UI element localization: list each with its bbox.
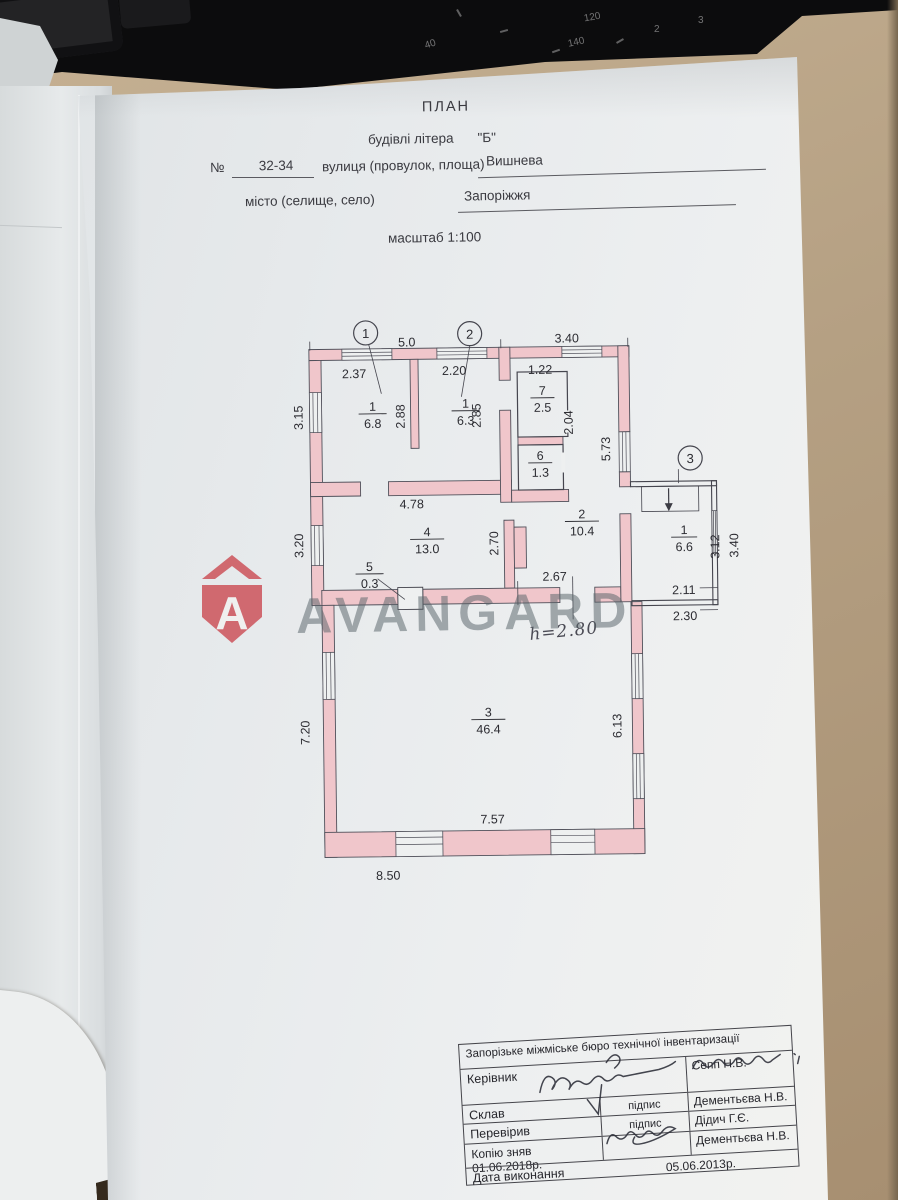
room-number: 4 bbox=[424, 525, 431, 539]
room-number: 7 bbox=[539, 384, 546, 398]
avangard-logo-icon: A bbox=[197, 553, 267, 645]
room-number: 2 bbox=[578, 507, 585, 521]
gauge-tick-icon bbox=[552, 49, 560, 54]
room-label-13.0: 4 13.0 bbox=[410, 525, 444, 556]
street-label: вулиця (провулок, площа) bbox=[322, 157, 485, 175]
room-label-2.5: 7 2.5 bbox=[530, 384, 554, 415]
dim: 8.50 bbox=[376, 869, 401, 883]
underline bbox=[232, 177, 314, 178]
axis-mark-3: 3 bbox=[686, 451, 693, 466]
dim: 4.78 bbox=[399, 497, 424, 511]
dim: 2.85 bbox=[470, 403, 484, 428]
dim: 3.40 bbox=[554, 331, 579, 345]
entrance-arrow-icon bbox=[665, 488, 673, 511]
dim: 3.40 bbox=[727, 533, 741, 558]
dim: 2.04 bbox=[562, 410, 576, 435]
dim: 2.88 bbox=[394, 404, 408, 429]
dim: 2.30 bbox=[673, 609, 698, 623]
folder-edge bbox=[887, 0, 898, 1200]
axis-mark-1: 1 bbox=[362, 326, 369, 341]
photo-of-plan-document: 40 120 140 2 3 ПЛАН будівлі літера"Б" № … bbox=[0, 0, 898, 1200]
dim: 7.57 bbox=[480, 812, 505, 826]
room-area: 6.6 bbox=[675, 540, 693, 554]
room-label-46.4: 3 46.4 bbox=[471, 705, 505, 736]
gauge-tick-icon bbox=[456, 9, 462, 17]
gauge-tick-icon bbox=[500, 29, 508, 33]
gauge-tick-icon bbox=[616, 38, 624, 44]
dim: 2.20 bbox=[442, 364, 467, 378]
room-number: 1 bbox=[462, 397, 469, 411]
city-label: місто (селище, село) bbox=[245, 192, 375, 209]
room-label-1.3: 6 1.3 bbox=[528, 449, 552, 480]
page-title: ПЛАН bbox=[398, 98, 494, 116]
dim: 3.20 bbox=[292, 533, 306, 558]
room-area: 6.8 bbox=[364, 417, 382, 431]
room-area: 1.3 bbox=[532, 466, 550, 480]
dim: 2.70 bbox=[487, 531, 501, 556]
room-label-6.6: 1 6.6 bbox=[671, 523, 697, 554]
axis-mark-2: 2 bbox=[466, 327, 473, 342]
dim: 3.12 bbox=[708, 534, 722, 559]
dim: 2.11 bbox=[672, 583, 696, 597]
room-area: 2.5 bbox=[534, 401, 552, 415]
room-number: 5 bbox=[366, 560, 373, 574]
gauge-number: 2 bbox=[654, 25, 660, 35]
watermark-text: AVANGARD bbox=[296, 581, 634, 645]
dim: 5.73 bbox=[599, 437, 613, 462]
room-label-6.8: 1 6.8 bbox=[358, 400, 386, 431]
logo-letter: A bbox=[215, 587, 248, 639]
dim: 1.22 bbox=[528, 363, 553, 377]
dim: 3.15 bbox=[292, 405, 306, 430]
dim: 2.37 bbox=[342, 367, 367, 381]
gauge-number: 140 bbox=[567, 36, 585, 49]
number-value: 32-34 bbox=[236, 157, 316, 173]
dim: 6.13 bbox=[610, 714, 624, 739]
gauge-number: 40 bbox=[424, 39, 438, 52]
room-label-10.4: 2 10.4 bbox=[565, 507, 599, 538]
scale-label: масштаб 1:100 bbox=[388, 229, 481, 246]
room-area: 46.4 bbox=[476, 722, 501, 736]
number-label: № bbox=[210, 160, 225, 175]
dim: 5.0 bbox=[398, 335, 416, 349]
street-value: Вишнева bbox=[486, 153, 543, 169]
building-letter-value: "Б" bbox=[477, 130, 496, 145]
room-area: 10.4 bbox=[570, 524, 595, 538]
stamp-table: Запорізьке міжміське бюро технічної інве… bbox=[458, 1025, 800, 1186]
city-value: Запоріжжя bbox=[464, 187, 531, 203]
building-letter-line: будівлі літера"Б" bbox=[368, 130, 496, 147]
room-number: 1 bbox=[369, 400, 376, 414]
dim: 7.20 bbox=[298, 720, 312, 745]
building-letter-label: будівлі літера bbox=[368, 131, 454, 147]
room-area: 13.0 bbox=[415, 542, 440, 556]
signature-area bbox=[597, 1056, 687, 1096]
room-number: 1 bbox=[681, 523, 688, 537]
gauge-number: 3 bbox=[698, 16, 704, 26]
gauge-number: 120 bbox=[583, 12, 601, 25]
room-number: 3 bbox=[485, 705, 492, 719]
dashboard-vent-icon bbox=[119, 0, 192, 29]
room-number: 6 bbox=[537, 449, 544, 463]
